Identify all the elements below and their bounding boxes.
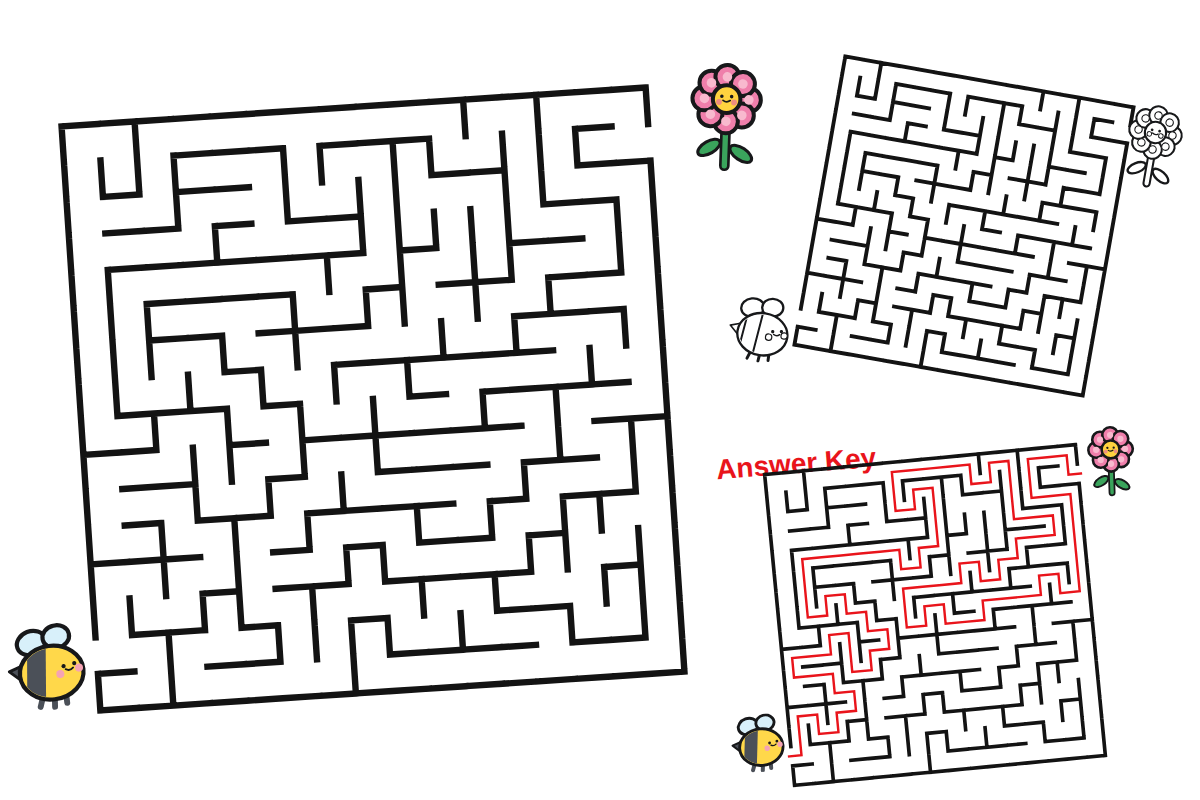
answer-key-maze (760, 440, 1109, 789)
flower-icon (1084, 423, 1139, 500)
large-puzzle-maze (54, 80, 692, 718)
worksheet-maze-thumbnail (790, 52, 1138, 400)
flower-icon (684, 59, 768, 177)
bee-icon (0, 619, 103, 715)
bee-icon (727, 711, 796, 775)
bee-outline-icon (722, 291, 805, 368)
maze-worksheet-mockup: Answer Key (0, 0, 1200, 800)
